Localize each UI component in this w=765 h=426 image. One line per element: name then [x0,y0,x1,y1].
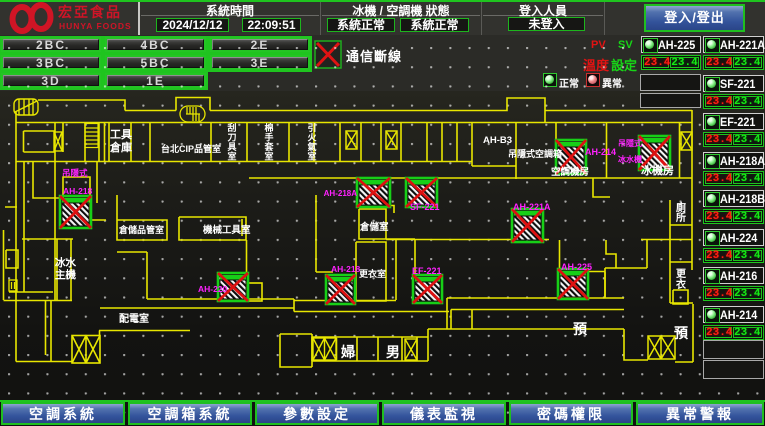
svg-text:AH-218: AH-218 [331,264,361,274]
svg-text:冰機房: 冰機房 [641,163,674,177]
svg-text:更衣: 更衣 [676,268,687,291]
svg-text:婦: 婦 [340,344,355,360]
svg-text:刮刀具室: 刮刀具室 [226,122,236,162]
svg-text:倉庫: 倉庫 [109,140,132,154]
svg-text:AH-214: AH-214 [585,147,616,157]
svg-text:引火氣室: 引火氣室 [307,122,317,162]
svg-text:AH-B3: AH-B3 [483,135,512,146]
svg-text:男: 男 [386,344,400,360]
svg-text:AH-225: AH-225 [561,262,592,272]
svg-text:工具: 工具 [110,128,132,141]
svg-text:倉儲品管室: 倉儲品管室 [118,224,164,235]
svg-text:台北CIP品管室: 台北CIP品管室 [161,143,221,154]
svg-text:AH-218A: AH-218A [324,189,358,198]
svg-text:SF-221: SF-221 [410,202,440,212]
svg-text:AH-220: AH-220 [198,284,228,294]
svg-text:AH-221A: AH-221A [513,202,551,212]
svg-text:吊隱式: 吊隱式 [62,168,88,178]
svg-text:主機: 主機 [55,268,76,281]
svg-text:冰水: 冰水 [55,256,76,269]
svg-text:倉儲室: 倉儲室 [359,221,389,233]
svg-text:機械工具室: 機械工具室 [203,224,251,236]
svg-text:預: 預 [573,321,588,337]
svg-text:配電室: 配電室 [119,312,149,325]
svg-text:冰水機: 冰水機 [618,154,642,164]
svg-text:吊隱式空調箱: 吊隱式空調箱 [508,148,562,159]
svg-text:吊隱式: 吊隱式 [618,138,642,148]
svg-text:EF-221: EF-221 [412,266,442,276]
svg-text:更衣室: 更衣室 [359,268,386,279]
svg-text:AH-218: AH-218 [63,186,93,196]
svg-text:廁所: 廁所 [676,201,686,224]
svg-text:棉手套室: 棉手套室 [264,122,274,162]
svg-text:空調機房: 空調機房 [551,166,589,178]
svg-text:預: 預 [674,325,689,341]
